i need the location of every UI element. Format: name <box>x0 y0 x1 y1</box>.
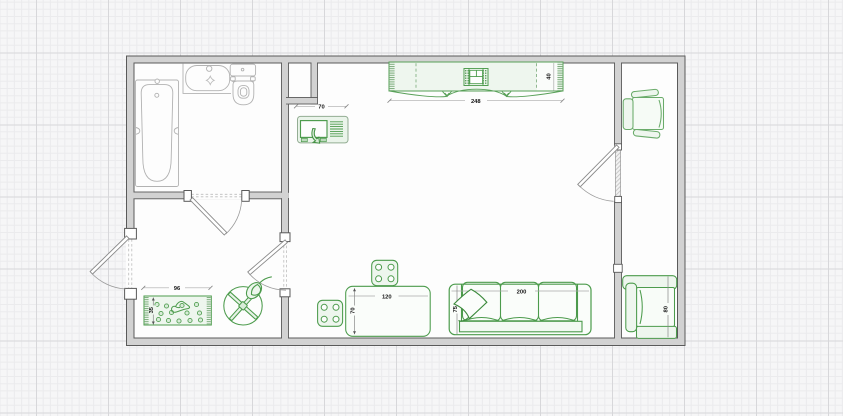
svg-text:40: 40 <box>547 73 553 79</box>
svg-text:70: 70 <box>350 307 356 313</box>
svg-text:96: 96 <box>174 286 181 292</box>
svg-text:70: 70 <box>318 105 324 111</box>
svg-text:80: 80 <box>664 306 670 312</box>
svg-text:35: 35 <box>149 306 155 313</box>
svg-text:200: 200 <box>517 289 527 295</box>
svg-text:120: 120 <box>382 294 392 300</box>
svg-text:248: 248 <box>471 99 481 105</box>
